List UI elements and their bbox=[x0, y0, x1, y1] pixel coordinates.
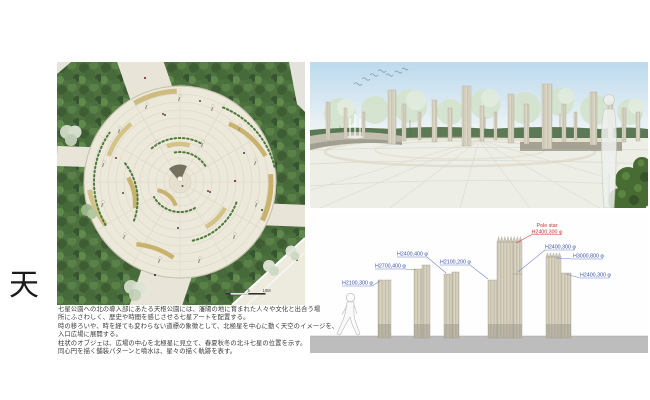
description-line: 入口広場に展開する。 bbox=[58, 331, 338, 339]
aerial-plan-rendering: 0 1 5 10M bbox=[57, 62, 305, 305]
pole-star-leader-line bbox=[516, 235, 562, 244]
label-h3000-800: H3000,800 φ bbox=[573, 254, 604, 260]
aerial-plan-panel: 0 1 5 10M bbox=[57, 62, 305, 305]
label-h2400-300-b: H2400,300 φ bbox=[580, 273, 611, 279]
description-line: 所にふさわしく、歴史や時間を感じさせる七星アートを配置する。 bbox=[58, 314, 338, 322]
ground-strip bbox=[310, 336, 648, 353]
scale-bar: 0 1 5 10M bbox=[224, 288, 271, 295]
pole-star-spec: H2400,300 φ bbox=[532, 230, 563, 236]
label-h2100-300: H2100,300 φ bbox=[342, 281, 373, 287]
person-silhouette bbox=[601, 95, 616, 209]
description-line: 時の移ろいや、時を経ても変わらない道標の象徴として、北極星を中心に動く天空のイメ… bbox=[58, 323, 338, 331]
pole-star-column bbox=[497, 242, 522, 338]
description-line: 同心円を描く舗装パターンと噴水は、星々の描く軌跡を表す。 bbox=[58, 348, 338, 356]
label-h2400-400: H2400,400 φ bbox=[397, 252, 428, 258]
column-elevation-panel: H2100,300 φ H2700,400 φ H2400,400 φ H210… bbox=[310, 212, 648, 360]
label-h2400-300-a: H2400,300 φ bbox=[545, 245, 576, 251]
pole-star-label: Pole star H2400,300 φ bbox=[532, 223, 563, 236]
perspective-rendering-panel bbox=[310, 62, 648, 208]
presentation-board: 天 bbox=[0, 0, 650, 400]
pole-star-title: Pole star bbox=[537, 223, 558, 229]
description-text: 七星公園への北の導入部にあたる天枢公園には、瀋陽の地に育まれた人々や文化と出合う… bbox=[58, 306, 338, 356]
kanji-ten-title: 天 bbox=[9, 270, 39, 302]
description-line: 柱状のオブジェは、広場の中心を北極星に見立て、春夏秋冬の北斗七星の位置を示す。 bbox=[58, 340, 338, 348]
label-h2700-400: H2700,400 φ bbox=[375, 264, 406, 270]
walking-person-silhouette bbox=[337, 293, 360, 335]
perspective-rendering bbox=[310, 62, 648, 208]
scale-label-10m: 10M bbox=[263, 288, 272, 293]
label-h2100-200: H2100,200 φ bbox=[440, 260, 471, 266]
column-elevation-diagram: H2100,300 φ H2700,400 φ H2400,400 φ H210… bbox=[310, 212, 648, 360]
